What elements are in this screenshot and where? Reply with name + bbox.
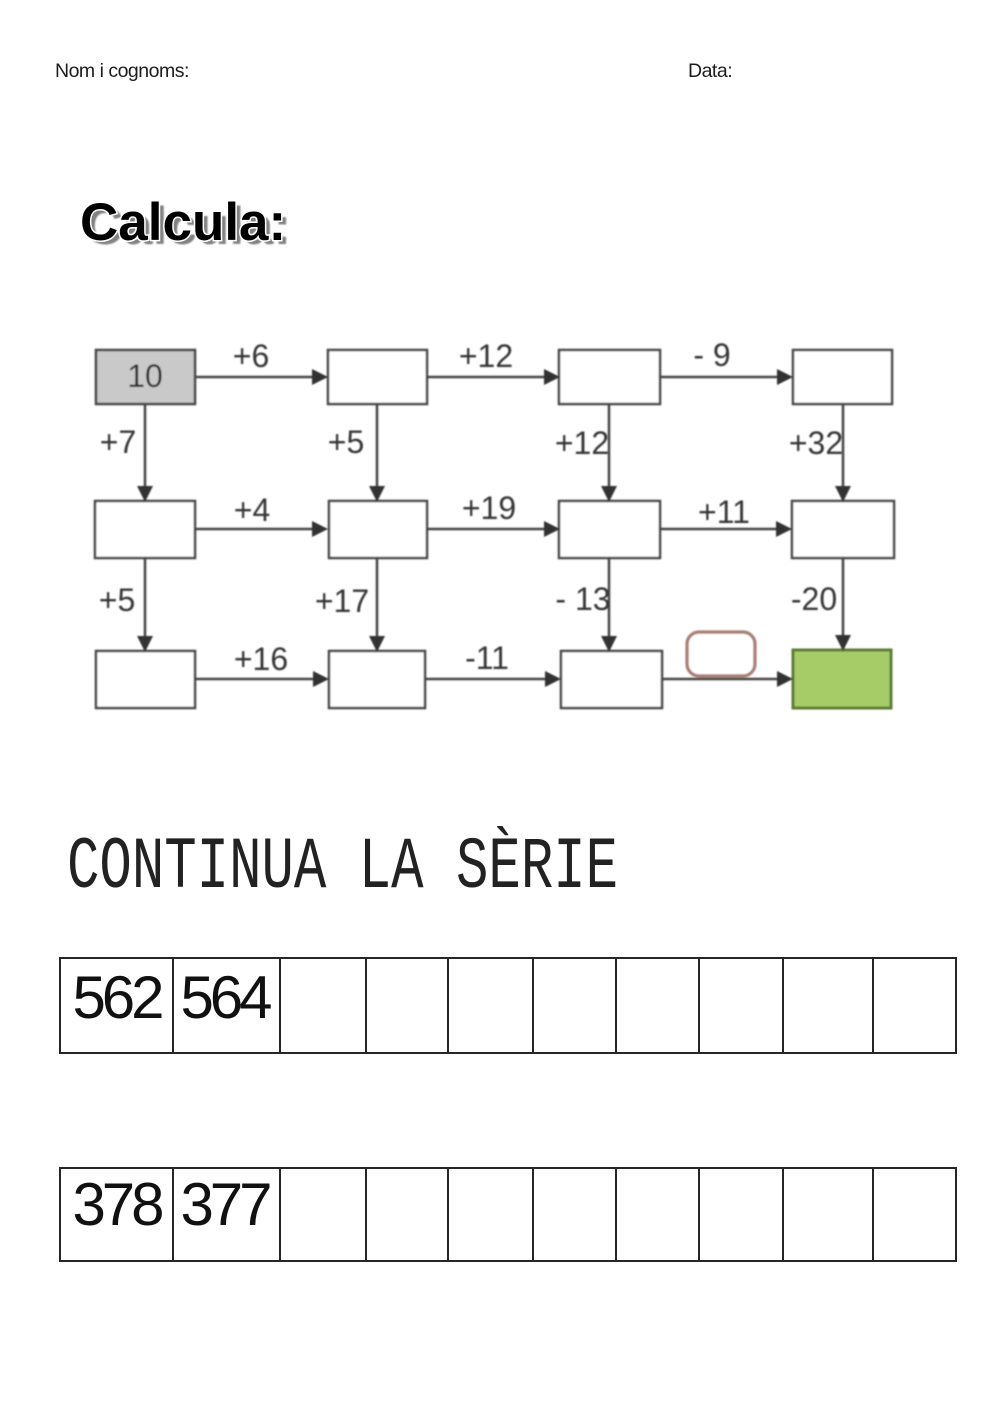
svg-text:+12: +12 xyxy=(459,338,513,374)
svg-text:+12: +12 xyxy=(555,425,609,461)
svg-text:+4: +4 xyxy=(234,492,270,528)
svg-text:-20: -20 xyxy=(791,581,837,617)
svg-text:- 9: - 9 xyxy=(693,337,730,373)
svg-text:- 13: - 13 xyxy=(555,581,610,617)
svg-text:+7: +7 xyxy=(100,424,136,460)
svg-text:+5: +5 xyxy=(99,582,135,618)
svg-text:+17: +17 xyxy=(315,583,369,619)
svg-text:+16: +16 xyxy=(234,641,288,677)
svg-text:+32: +32 xyxy=(789,425,843,461)
svg-text:+5: +5 xyxy=(328,424,364,460)
svg-text:+6: +6 xyxy=(233,338,269,374)
svg-text:10: 10 xyxy=(127,358,163,394)
svg-text:+19: +19 xyxy=(462,490,516,526)
svg-text:-11: -11 xyxy=(465,640,509,676)
svg-text:+11: +11 xyxy=(698,494,750,530)
